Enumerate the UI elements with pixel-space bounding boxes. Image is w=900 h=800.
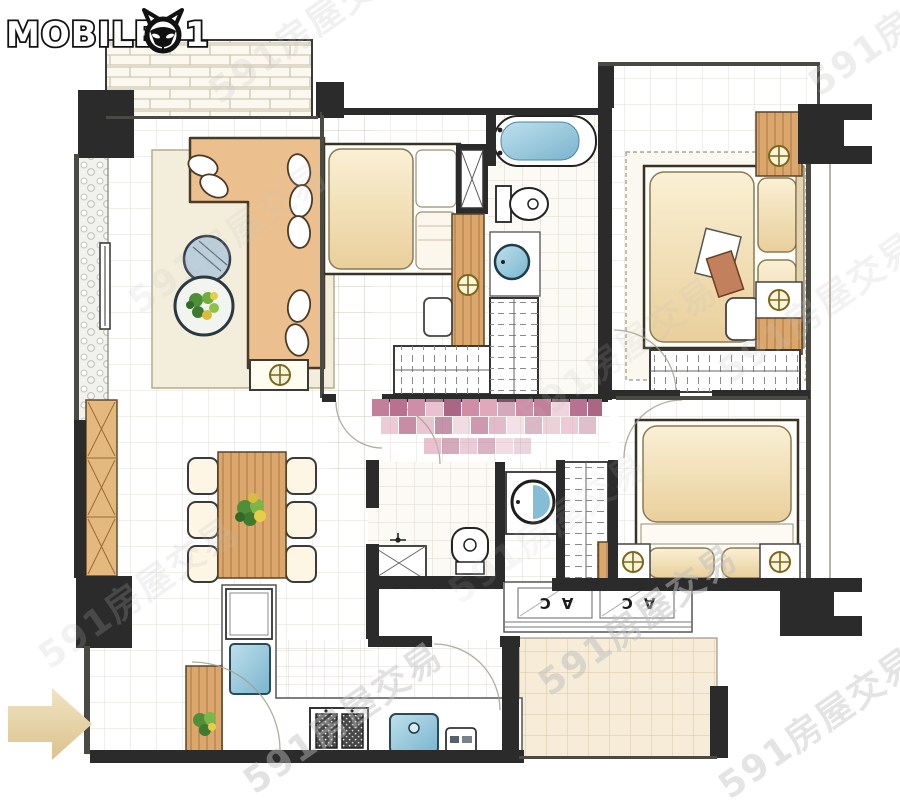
- wall-segment: [74, 154, 79, 426]
- wall-segment: [598, 106, 612, 400]
- second-sink: [390, 714, 438, 754]
- table-lamp-symbol: [458, 275, 478, 295]
- table-lamp-symbol: [623, 552, 643, 572]
- wall-segment: [598, 62, 820, 66]
- wall-segment: [366, 589, 379, 639]
- wall-segment: [829, 164, 831, 588]
- washbasin: [495, 245, 529, 279]
- pillow: [648, 548, 714, 578]
- wall-notch: [844, 120, 872, 146]
- logo-text: MOBILE: [6, 15, 158, 55]
- wall-segment: [366, 544, 379, 580]
- floor-plan-drawing: [0, 0, 900, 800]
- wall-segment: [495, 462, 505, 582]
- laundry-nook: [506, 472, 560, 534]
- storage-cabinet: [86, 400, 117, 576]
- wall-segment: [76, 576, 132, 648]
- table-lamp-symbol: [769, 290, 789, 310]
- wall-segment: [502, 640, 519, 756]
- cat-face-icon: [144, 10, 182, 51]
- wall-segment: [84, 646, 90, 754]
- wall-segment: [598, 62, 614, 108]
- wall-segment: [608, 460, 618, 582]
- bedroom-stool: [726, 298, 760, 340]
- wall-segment: [519, 756, 717, 759]
- wall-segment: [74, 420, 86, 578]
- wall-notch: [834, 592, 862, 616]
- mobile01-logo-graphic: MOBILE 1: [4, 4, 214, 62]
- pillow: [416, 150, 456, 207]
- duvet: [329, 149, 413, 269]
- burner: [316, 714, 337, 748]
- mobile01-logo: MOBILE 1: [4, 4, 214, 66]
- wall-segment: [486, 108, 496, 166]
- bathtub-water: [501, 122, 579, 160]
- wall-segment: [366, 460, 379, 508]
- wall-segment: [320, 112, 324, 398]
- wall-segment: [322, 394, 336, 402]
- pillow: [758, 178, 796, 252]
- wall-segment: [78, 90, 134, 158]
- wall-segment: [806, 164, 811, 588]
- duvet: [643, 426, 791, 522]
- entrance: [186, 666, 222, 754]
- bedroom-master: [626, 112, 806, 392]
- desk-chair: [424, 298, 452, 336]
- logo-text-suffix: 1: [185, 15, 209, 55]
- wall-segment: [710, 686, 728, 758]
- blanket-band: [641, 524, 793, 544]
- fridge: [226, 589, 272, 639]
- ac-unit-label: AC: [602, 590, 674, 616]
- table-lamp-symbol: [769, 146, 789, 166]
- burner: [342, 714, 363, 748]
- wall-segment: [106, 116, 318, 119]
- wall-segment: [556, 460, 565, 580]
- wall-segment: [90, 750, 524, 763]
- floor-plan-image: MOBILE 1 AC AC 591房屋交易 591房屋交易 591房屋交易 5…: [0, 0, 900, 800]
- toilet: [496, 186, 548, 222]
- wall-segment: [366, 576, 503, 589]
- table-lamp-symbol: [270, 365, 290, 385]
- wall-segment: [817, 64, 820, 108]
- table-lamp-symbol: [770, 552, 790, 572]
- entrance-arrow: [8, 688, 92, 760]
- ac-unit-label: AC: [520, 590, 592, 616]
- kitchen-sink: [230, 644, 270, 694]
- planter-table: [175, 277, 233, 335]
- toilet: [452, 528, 488, 574]
- wall-segment: [616, 396, 808, 400]
- wall-segment: [322, 108, 608, 115]
